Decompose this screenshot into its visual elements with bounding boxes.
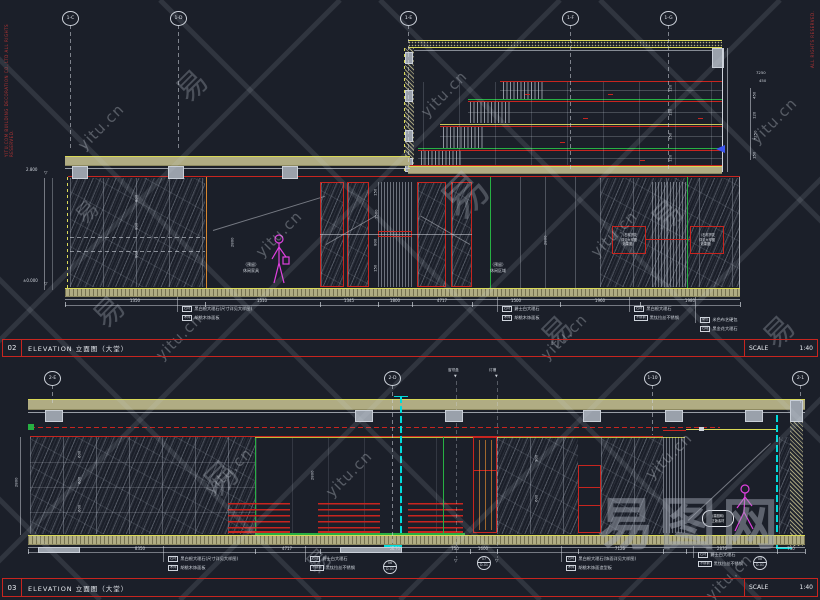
dimension-value: 7125 [612,547,628,552]
centermark-red [560,142,565,143]
ceiling-drop-block [168,166,184,179]
grid-bubble: 2-D [384,371,401,386]
dim-tick [777,549,778,554]
dimension-value: 8350 [132,547,148,552]
ceiling-drop-block [583,410,601,422]
callout-leader [497,297,498,312]
annotation-layer: 1-C1-D1-E1-F1-G2-E2-D1-102-1窗帘盒▼▽灯槽▼▽135… [0,0,820,600]
callout-tag: 木饰 [502,315,512,321]
dimension-value-rotated: 120 [668,109,673,116]
material-callout: 石材黑白根大理石(尺寸详见大样图) [168,556,238,562]
dim-tick [497,549,498,554]
scale-value: 1:40 [800,584,813,591]
note-line: 效果图） [691,242,723,247]
material-callout: 石材爵士白大理石 [502,306,540,312]
dimension-value: 2170 [387,547,403,552]
dimension-value: 1600 [475,547,491,552]
dimension-value-rotated: 600 [77,505,82,512]
callout-leader [561,546,562,562]
callout-text: 爵士白大理石 [322,556,347,561]
callout-tag: 不锈钢 [634,315,648,321]
dim-tick [740,302,741,307]
callout-tag: 木饰 [182,315,192,321]
centermark-red [525,94,530,95]
centermark-red [583,118,588,119]
centermark-red [640,160,645,161]
material-callout: 石材黑金花大理石 [700,326,738,332]
dimension-value-rotated: 450 [752,92,757,99]
dim-tick [470,549,471,554]
callout-leader [693,546,694,558]
callout-tag: 木饰 [566,565,576,571]
centermark-red [698,118,703,119]
callout-leader [629,297,630,312]
callout-tag: 不锈钢 [310,565,324,571]
dimension-value-rotated: 2800 [544,235,549,245]
callout-text: 爵士白大理石 [710,552,735,557]
dim-tick [255,549,256,554]
callout-tag: 石材 [182,306,192,312]
dimension-value: 7250 [756,71,766,76]
material-callout: 木饰胡桃木饰面板 [182,315,220,321]
cad-sheet: yitu.cnyitu.cnyitu.cnyitu.cnyitu.cnyitu.… [0,0,820,600]
dimension-value-rotated: 800 [134,223,139,230]
callout-leader [695,297,696,323]
callout-text: 胡桃木饰面板 [194,315,219,320]
elevation-mark: ±0.000 [23,279,38,284]
grid-line [70,25,71,151]
callout-tag: 石材 [634,306,644,312]
reserve-line: （预留） [490,262,506,268]
callout-text: 黑钛拉丝不锈钢 [650,315,679,320]
dimension-value-rotated: 900 [534,455,539,462]
dimension-value-rotated: 800 [134,195,139,202]
callout-tag: 不锈钢 [698,561,712,567]
callout-tag: 石材 [698,552,708,558]
dimension-value: 1510 [254,299,270,304]
dimension-value-rotated: 120 [668,155,673,162]
material-callout: 不锈钢黑钛拉丝不锈钢 [310,565,355,571]
callout-tag: 石材 [310,556,320,562]
ceiling-drop-block [665,410,683,422]
material-callout: 木饰胡桃木饰面板 [168,565,206,571]
ceiling-drop-block [72,166,88,179]
material-callout: 木饰胡桃木饰面造型板 [566,565,612,571]
ceiling-drop-block [445,410,463,422]
dimension-value: 4717 [434,299,450,304]
dimension-value: 750 [783,547,799,552]
dim-tick [378,302,379,307]
ceiling-drop-block [355,410,373,422]
dimension-value-rotated: 1500 [375,209,380,219]
detail-circle: 06D-01 [383,560,397,574]
detail-sheet: D-01 [384,567,396,572]
scale-value: 1:40 [800,345,813,352]
level-marker-line [456,381,457,558]
dim-tick [65,302,66,307]
callout-tag: 木饰 [168,565,178,571]
dimension-value-rotated: 2800 [231,237,236,247]
detail-sheet: D-01 [754,563,766,568]
material-callout: 石材爵士白大理石 [698,552,736,558]
callout-leader [177,297,178,312]
material-note-box: （石材拼花详见大样图效果图） [690,226,724,254]
ceiling-drop-block [745,410,763,422]
elevation-triangle: ▽ [44,171,47,176]
detail-sheet: D-01 [478,563,490,568]
dim-tick [28,549,29,554]
reserve-label: （预留）休闲区域 [490,262,506,273]
dimension-value-rotated: 600 [77,451,82,458]
dim-tick [560,302,561,307]
callout-text: 胡桃木饰面板 [180,565,205,570]
grid-bubble: 1-F [562,11,579,26]
dim-tick [805,549,806,554]
grid-line [178,25,179,151]
elevation-triangle: ▽ [44,282,47,287]
dimension-value: 450 [759,79,766,84]
elevation-mark: 2.800 [26,168,37,173]
material-callout: 不锈钢黑钛拉丝不锈钢 [634,315,679,321]
sheet-scale: SCALE 1:40 [744,340,817,356]
material-callout: 石材黑白根大理石 [634,306,672,312]
sheet-number: 03 [3,579,22,596]
material-callout: 石材黑白根大理石(饰面详见大样图) [566,556,636,562]
callout-text: 胡桃木饰面造型板 [578,565,612,570]
ceiling-drop-block [282,166,298,179]
callout-text: 爵士白大理石 [514,306,539,311]
callout-leader [163,546,164,562]
dimension-value: 1500 [508,299,524,304]
title-bar-03: 03 ELEVATION 立面图（大堂） SCALE 1:40 [2,578,818,597]
dim-tick [320,302,321,307]
level-marker-line [497,381,498,558]
callout-text: 黑白根大理石(尺寸详见大样图) [180,556,238,561]
dimension-value-rotated: 2800 [311,470,316,480]
callout-text: 黑钛拉丝不锈钢 [714,561,743,566]
dim-tick [412,302,413,307]
material-callout: 木饰胡桃木饰面板 [502,315,540,321]
dim-tick [663,549,664,554]
material-note-box: （石材拼花详见大样图效果图） [612,226,646,254]
grid-line [800,385,801,405]
grid-bubble: 1-D [170,11,187,26]
callout-tag: 石材 [566,556,576,562]
dimension-value-rotated: 150 [668,133,673,140]
callout-leader [305,546,306,562]
level-marker-triangle: ▼ [454,374,457,378]
callout-text: 黑钛拉丝不锈钢 [326,565,355,570]
dimension-value-rotated: 800 [134,251,139,258]
level-marker-triangle: ▼ [495,374,498,378]
grid-line [52,385,53,403]
dim-tick [320,549,321,554]
sheet-scale: SCALE 1:40 [744,579,817,596]
grid-bubble: 2-1 [792,371,809,386]
sheet-title: ELEVATION 立面图（大堂） [22,583,744,593]
dimension-value-rotated: 2800 [15,477,20,487]
callout-text: 黑白根大理石 [646,306,671,311]
dimension-value: 1350 [127,299,143,304]
material-callout: 石材黑白根大理石(尺寸详见大样图) [182,306,252,312]
dimension-value: 4717 [279,547,295,552]
dimension-value-rotated: 600 [77,477,82,484]
callout-text: 黑白根大理石(尺寸详见大样图) [194,306,252,311]
dimension-value-rotated: 150 [373,265,378,272]
reserve-line: （预留） [243,262,259,268]
callout-tag: 石材 [502,306,512,312]
scale-label: SCALE [749,345,768,352]
dim-tick [578,549,579,554]
grid-bubble: 2-E [44,371,61,386]
dimension-value: 1800 [387,299,403,304]
callout-text: 胡桃木饰面板 [514,315,539,320]
sheet-number: 02 [3,340,22,356]
callout-tag: 硬包 [700,317,710,323]
scale-label: SCALE [749,584,768,591]
dimension-value-rotated: 7250 [754,130,759,140]
dimension-value-rotated: 800 [373,239,378,246]
material-callout: 石材爵士白大理石 [310,556,348,562]
grid-bubble: 1-E [400,11,417,26]
dimension-value: 750 [447,547,463,552]
dimension-value-rotated: 150 [752,152,757,159]
level-marker-foot: ▽ [454,559,457,564]
grid-line [570,25,571,171]
grid-line [408,25,409,171]
level-marker-label: 窗帘盒 [448,368,459,372]
grid-line [668,25,669,171]
material-callout: 硬包米色布艺硬包 [700,317,738,323]
dimension-value: 1345 [341,299,357,304]
material-callout: 不锈钢黑钛拉丝不锈钢 [698,561,743,567]
dimension-value-rotated: 600 [534,495,539,502]
grid-bubble: 1-G [660,11,677,26]
callout-tag: 石材 [700,326,710,332]
centermark-red [608,94,613,95]
ceiling-drop-block [45,410,63,422]
dim-tick [686,549,687,554]
title-bar-02: 02 ELEVATION 立面图（大堂） SCALE 1:40 [2,339,818,357]
level-marker-label: 灯槽 [489,368,496,372]
sheet-title: ELEVATION 立面图（大堂） [22,343,744,353]
detail-circle: 08D-01 [753,556,767,570]
reserve-label: （预留）休闲家具 [243,262,259,273]
reserve-line: 休闲区域 [490,268,506,274]
callout-text: 黑金花大理石 [712,326,737,331]
grid-bubble: 1-10 [644,371,661,386]
detail-circle: 07D-01 [477,556,491,570]
level-marker-foot: ▽ [495,559,498,564]
dimension-value-rotated: 150 [373,189,378,196]
dimension-value-rotated: 120 [752,112,757,119]
dimension-value: 1960 [592,299,608,304]
dim-tick [472,302,473,307]
callout-tag: 石材 [168,556,178,562]
note-line: 效果图） [613,242,645,247]
grid-line [652,385,653,435]
grid-bubble: 1-C [62,11,79,26]
reserve-line: 休闲家具 [243,268,259,274]
dimension-value-rotated: 120 [668,85,673,92]
callout-text: 米色布艺硬包 [712,317,737,322]
grid-line [392,385,393,550]
callout-text: 黑白根大理石(饰面详见大样图) [578,556,636,561]
